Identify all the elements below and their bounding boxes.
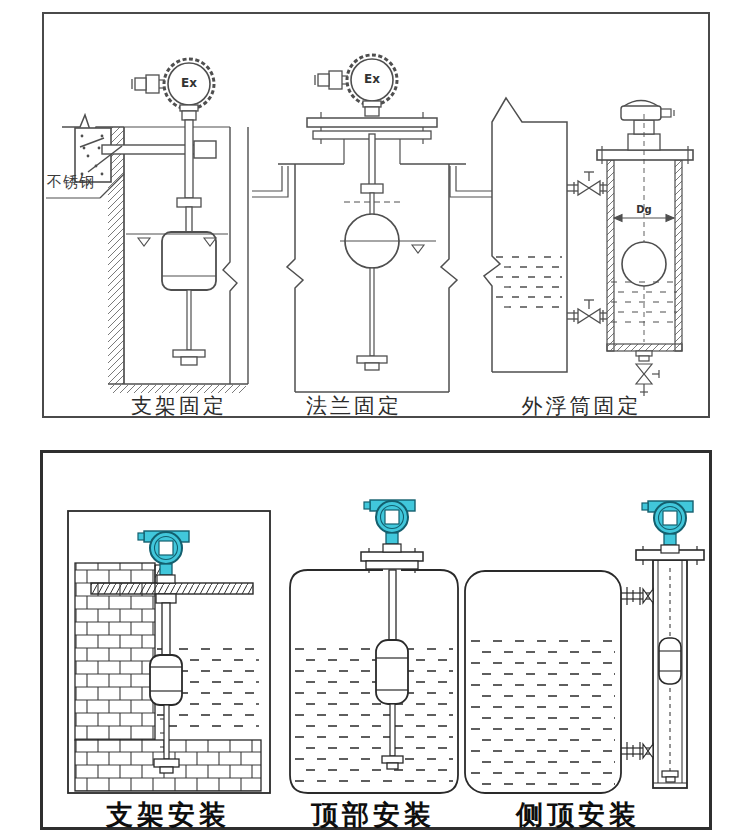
installation-methods-drawing — [43, 453, 709, 827]
ex-marking-2: Ex — [358, 72, 386, 86]
label-external-chamber-fixing: 外浮筒固定 — [494, 392, 669, 420]
label-flange-fixing: 法兰固定 — [279, 392, 429, 420]
chamber-bottom — [607, 344, 682, 351]
stem — [162, 603, 170, 655]
sphere-float — [622, 242, 666, 286]
stainless-steel-annotation: 不锈钢 — [47, 173, 95, 192]
process-tank — [484, 98, 567, 372]
stem — [389, 570, 396, 640]
stem — [185, 120, 193, 198]
stem — [369, 134, 375, 186]
ex-marking-1: Ex — [175, 76, 203, 90]
mounting-flange — [361, 552, 423, 561]
installation-diagram-page: 不锈钢 Ex Ex Dg 支架固定 法兰固定 外浮筒固定 — [0, 0, 750, 840]
label-side-top-installation: 侧顶安装 — [493, 797, 663, 833]
label-bracket-installation: 支架安装 — [83, 797, 253, 833]
chamber-wall-right — [675, 160, 682, 351]
compact-head — [621, 101, 674, 121]
teal-transmitter-head — [364, 500, 415, 552]
figure-flange-fixing — [252, 55, 492, 392]
bottom-weight — [662, 771, 678, 777]
cable-gland — [329, 71, 342, 89]
figure-top-installation — [290, 500, 458, 793]
isolation-valve-bottom — [567, 300, 607, 323]
tank-liquid — [295, 649, 453, 781]
bottom-weight — [173, 350, 205, 357]
chamber-flange — [597, 150, 693, 160]
isolation-valve-top — [567, 172, 607, 195]
tank-liquid — [496, 257, 562, 307]
vessel-wall-left — [287, 164, 303, 392]
bottom-weight — [382, 756, 403, 763]
installation-methods-panel: 支架安装 顶部安装 侧顶安装 — [40, 450, 712, 830]
teal-transmitter-head — [642, 501, 693, 553]
fixing-methods-panel: 不锈钢 Ex Ex Dg 支架固定 法兰固定 外浮筒固定 — [42, 12, 710, 418]
vessel-wall-right — [441, 164, 457, 392]
storage-tank — [465, 571, 621, 793]
float — [150, 655, 182, 705]
figure-bracket-fixing — [46, 59, 248, 393]
stem-clamp — [194, 141, 216, 158]
dg-dimension-label: Dg — [631, 204, 657, 215]
figure-external-chamber-fixing — [484, 98, 693, 396]
label-bracket-fixing: 支架固定 — [104, 392, 254, 420]
label-top-installation: 顶部安装 — [288, 797, 458, 833]
bottom-weight — [154, 759, 179, 767]
process-connection-bottom — [621, 742, 653, 760]
float — [162, 232, 216, 290]
support-platform — [91, 583, 253, 594]
float — [376, 640, 408, 704]
flange-plate — [307, 118, 437, 127]
tank-liquid — [471, 641, 615, 784]
cable-gland — [146, 75, 159, 93]
figure-bracket-installation — [68, 511, 270, 793]
figure-side-top-installation — [465, 501, 704, 793]
float — [659, 638, 681, 684]
process-connection-top — [621, 587, 653, 605]
drain-valve — [636, 351, 659, 396]
bottom-weight — [357, 356, 387, 363]
